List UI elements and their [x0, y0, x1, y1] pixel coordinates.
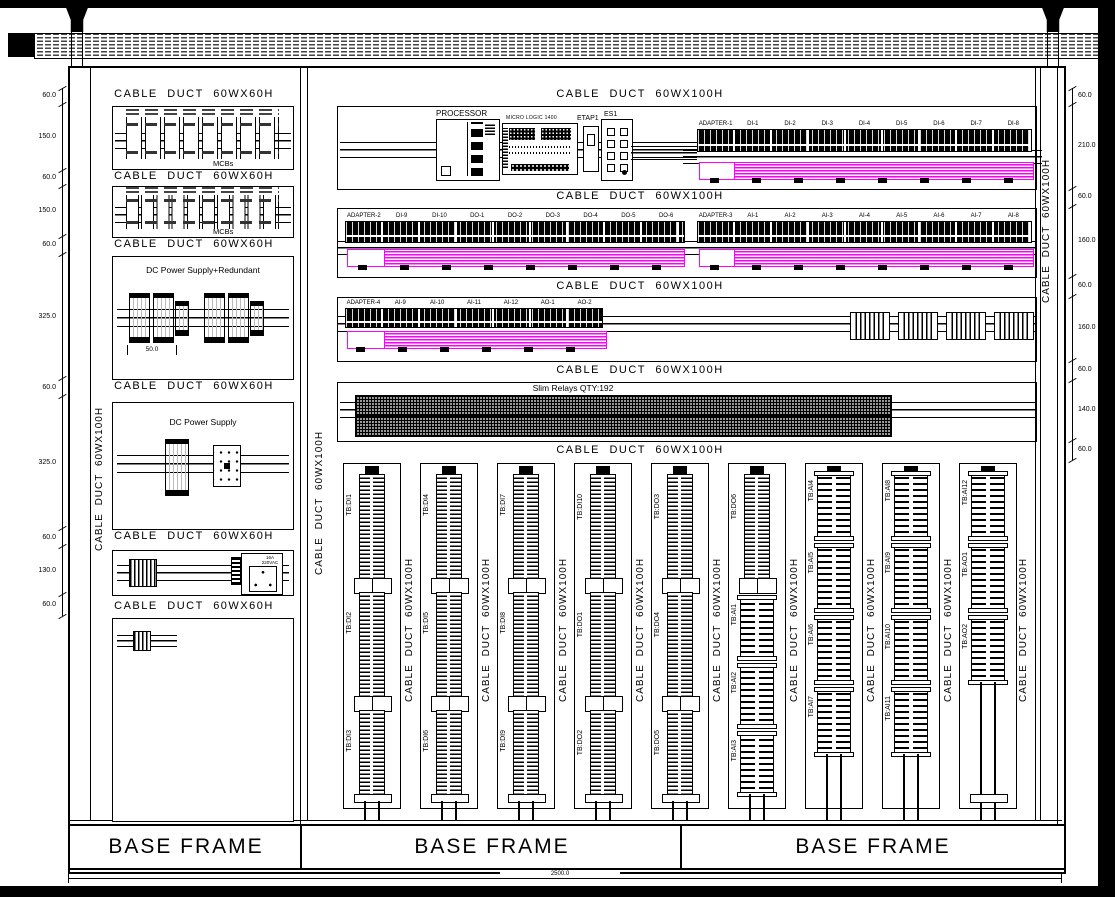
psu-module: [129, 293, 150, 343]
tb-column: TB:DI1 TB:DI2 TB:DI3: [343, 463, 401, 809]
cable-duct-header: CABLE DUCT 60WX60H: [92, 238, 296, 250]
vertical-cable-duct-label: CABLE DUCT 60WX100H: [404, 495, 417, 765]
base-frame-center: BASE FRAME: [300, 824, 684, 870]
terminal-strip-row2-right: ADAPTER-3AI-1AI-2 AI-3AI-4AI-5 AI-6AI-7A…: [697, 213, 1032, 243]
section-title: DC Power Supply: [113, 417, 293, 427]
base-frame-left: BASE FRAME: [68, 824, 304, 870]
psu-module: [204, 293, 225, 343]
tb-column: TB:DI4 TB:DI5 TB:DI6: [420, 463, 478, 809]
strip-module-labels: ADAPTER-3AI-1AI-2 AI-3AI-4AI-5 AI-6AI-7A…: [697, 213, 1032, 220]
etap-label: ETAP1: [577, 115, 599, 122]
bottom-dim-line: [68, 878, 1062, 879]
section-title: DC Power Supply+Redundant: [113, 265, 293, 275]
lifting-lug-left: [65, 5, 89, 32]
din-terminal-group: [946, 312, 986, 340]
relay-bank-title: Slim Relays QTY:192: [398, 383, 748, 393]
plc-unit: [502, 123, 578, 175]
tb-label: TB:DI3: [346, 730, 353, 752]
etap-module: [583, 126, 599, 172]
psu-module: [228, 293, 249, 343]
din-terminal-group: [994, 312, 1034, 340]
cable-duct-header: CABLE DUCT 60WX60H: [92, 170, 296, 182]
strip-module-labels: ADAPTER-4AI-9AI-10 AI-11AI-12AO-1 AO-2: [345, 300, 603, 307]
lifting-lug-right: [1041, 5, 1065, 32]
vertical-cable-duct-label: CABLE DUCT 60WX100H: [94, 404, 107, 554]
dc-power-supply-redundant-section: DC Power Supply+Redundant 50.0: [112, 256, 294, 380]
service-components-section: 16A 220VAC: [112, 550, 294, 596]
service-switch: [231, 557, 241, 585]
tb-column: TB:DI7 TB:DI8 TB:DI9: [497, 463, 555, 809]
socket-label: 16A 220VAC: [260, 555, 280, 565]
service-socket: 16A 220VAC: [241, 553, 283, 595]
es1-label: ES1: [604, 111, 617, 118]
vertical-cable-duct-label: CABLE DUCT 60WX100H: [558, 495, 571, 765]
top-border-bar: [0, 0, 1115, 8]
panel-layout-drawing: CABLE DUCT 60WX60H CABLE DUCT 60WX60H CA…: [0, 0, 1115, 897]
vertical-cable-duct-label: CABLE DUCT 60WX100H: [943, 495, 956, 765]
processor-label: PROCESSOR: [436, 109, 487, 118]
ethernet-ports: [607, 128, 626, 172]
vertical-cable-duct-label: CABLE DUCT 60WX100H: [1018, 495, 1031, 765]
cable-duct-header: CABLE DUCT 60WX60H: [92, 530, 296, 542]
cable-duct-header: CABLE DUCT 60WX60H: [92, 380, 296, 392]
vertical-cable-duct-label: CABLE DUCT 60WX100H: [635, 495, 648, 765]
processor-unit: [436, 119, 500, 181]
tb-label: TB:DI2: [346, 612, 353, 634]
din-terminal-group: [850, 312, 890, 340]
base-frame-right: BASE FRAME: [680, 824, 1066, 870]
cable-duct-header: CABLE DUCT 60WX60H: [92, 88, 296, 100]
mcb-group-2: MCBs: [112, 186, 294, 238]
terminal-strip-row3-left: ADAPTER-4AI-9AI-10 AI-11AI-12AO-1 AO-2: [345, 300, 603, 328]
vertical-cable-duct-label: CABLE DUCT 60WX100H: [712, 495, 725, 765]
din-terminal-group: [898, 312, 938, 340]
top-cable-duct: [34, 33, 1099, 59]
tb-column: TB:AI8 TB:AI9 TB:AI10 TB:AI11: [882, 463, 940, 809]
mcb-label: MCBs: [213, 159, 233, 168]
tb-column: TB:DI10 TB:DO1 TB:DO2: [574, 463, 632, 809]
vertical-cable-duct-label: CABLE DUCT 60WX100H: [866, 495, 879, 765]
micrologic-label: MICRO LOGIC 1400: [506, 115, 557, 121]
psu-module: [175, 301, 189, 336]
terminal-strip-row2-left: ADAPTER-2DI-9DI-10 DO-1DO-2DO-3 DO-4DO-5…: [345, 213, 685, 243]
psu-module: [153, 293, 174, 343]
vertical-cable-duct-label: CABLE DUCT 60WX100H: [481, 495, 494, 765]
strip-module-labels: ADAPTER-2DI-9DI-10 DO-1DO-2DO-3 DO-4DO-5…: [345, 213, 685, 220]
right-border-bar: [1098, 0, 1115, 897]
left-dim-chain: [58, 88, 67, 616]
cable-duct-header: CABLE DUCT 60WX100H: [310, 444, 970, 456]
terminal-strip-row1: ADAPTER-1DI-1DI-2 DI-3DI-4DI-5 DI-6DI-7D…: [697, 121, 1032, 151]
contactor-module: [213, 445, 241, 487]
psu-module: [165, 439, 189, 496]
cable-duct-header: CABLE DUCT 60WX100H: [310, 280, 970, 292]
tb-column: TB:DO6 TB:AI1 TB:AI2 TB:AI3: [728, 463, 786, 809]
psu-width-dimension: 50.0: [127, 345, 177, 355]
tb-column: TB:DO3 TB:DO4 TB:DO5: [651, 463, 709, 809]
spare-section: [112, 618, 294, 822]
psu-module: [250, 301, 264, 336]
mcb-label: MCBs: [213, 227, 233, 236]
tb-column: TB:AI4 TB:AI5 TB:AI6 TB:AI7: [805, 463, 863, 809]
tb-column: TB:AI12 TB:AO1 TB:AO2: [959, 463, 1017, 809]
bottom-dim-label: 2500.0: [500, 871, 620, 877]
top-duct-end-block: [8, 33, 34, 57]
cable-duct-header: CABLE DUCT 60WX100H: [310, 88, 970, 100]
right-dim-chain: [1068, 88, 1077, 460]
bottom-border-bar: [0, 886, 1115, 897]
cable-duct-header: CABLE DUCT 60WX100H: [310, 190, 970, 202]
tb-label: TB:DI1: [346, 494, 353, 516]
vertical-cable-duct-label: CABLE DUCT 60WX100H: [789, 495, 802, 765]
cable-duct-header: CABLE DUCT 60WX60H: [92, 600, 296, 612]
dc-power-supply-section: DC Power Supply: [112, 402, 294, 530]
strip-module-labels: ADAPTER-1DI-1DI-2 DI-3DI-4DI-5 DI-6DI-7D…: [697, 121, 1032, 128]
terminal-block-small: [129, 559, 157, 587]
vertical-cable-duct-label: CABLE DUCT 60WX100H: [314, 420, 327, 585]
es1-module: [601, 119, 633, 181]
slim-relay-bank: [355, 395, 892, 437]
mcb-group-1: MCBs: [112, 106, 294, 170]
vertical-cable-duct-label: CABLE DUCT 60WX100H: [1041, 156, 1054, 306]
terminal-block-small: [133, 631, 151, 651]
cable-duct-header: CABLE DUCT 60WX100H: [310, 364, 970, 376]
